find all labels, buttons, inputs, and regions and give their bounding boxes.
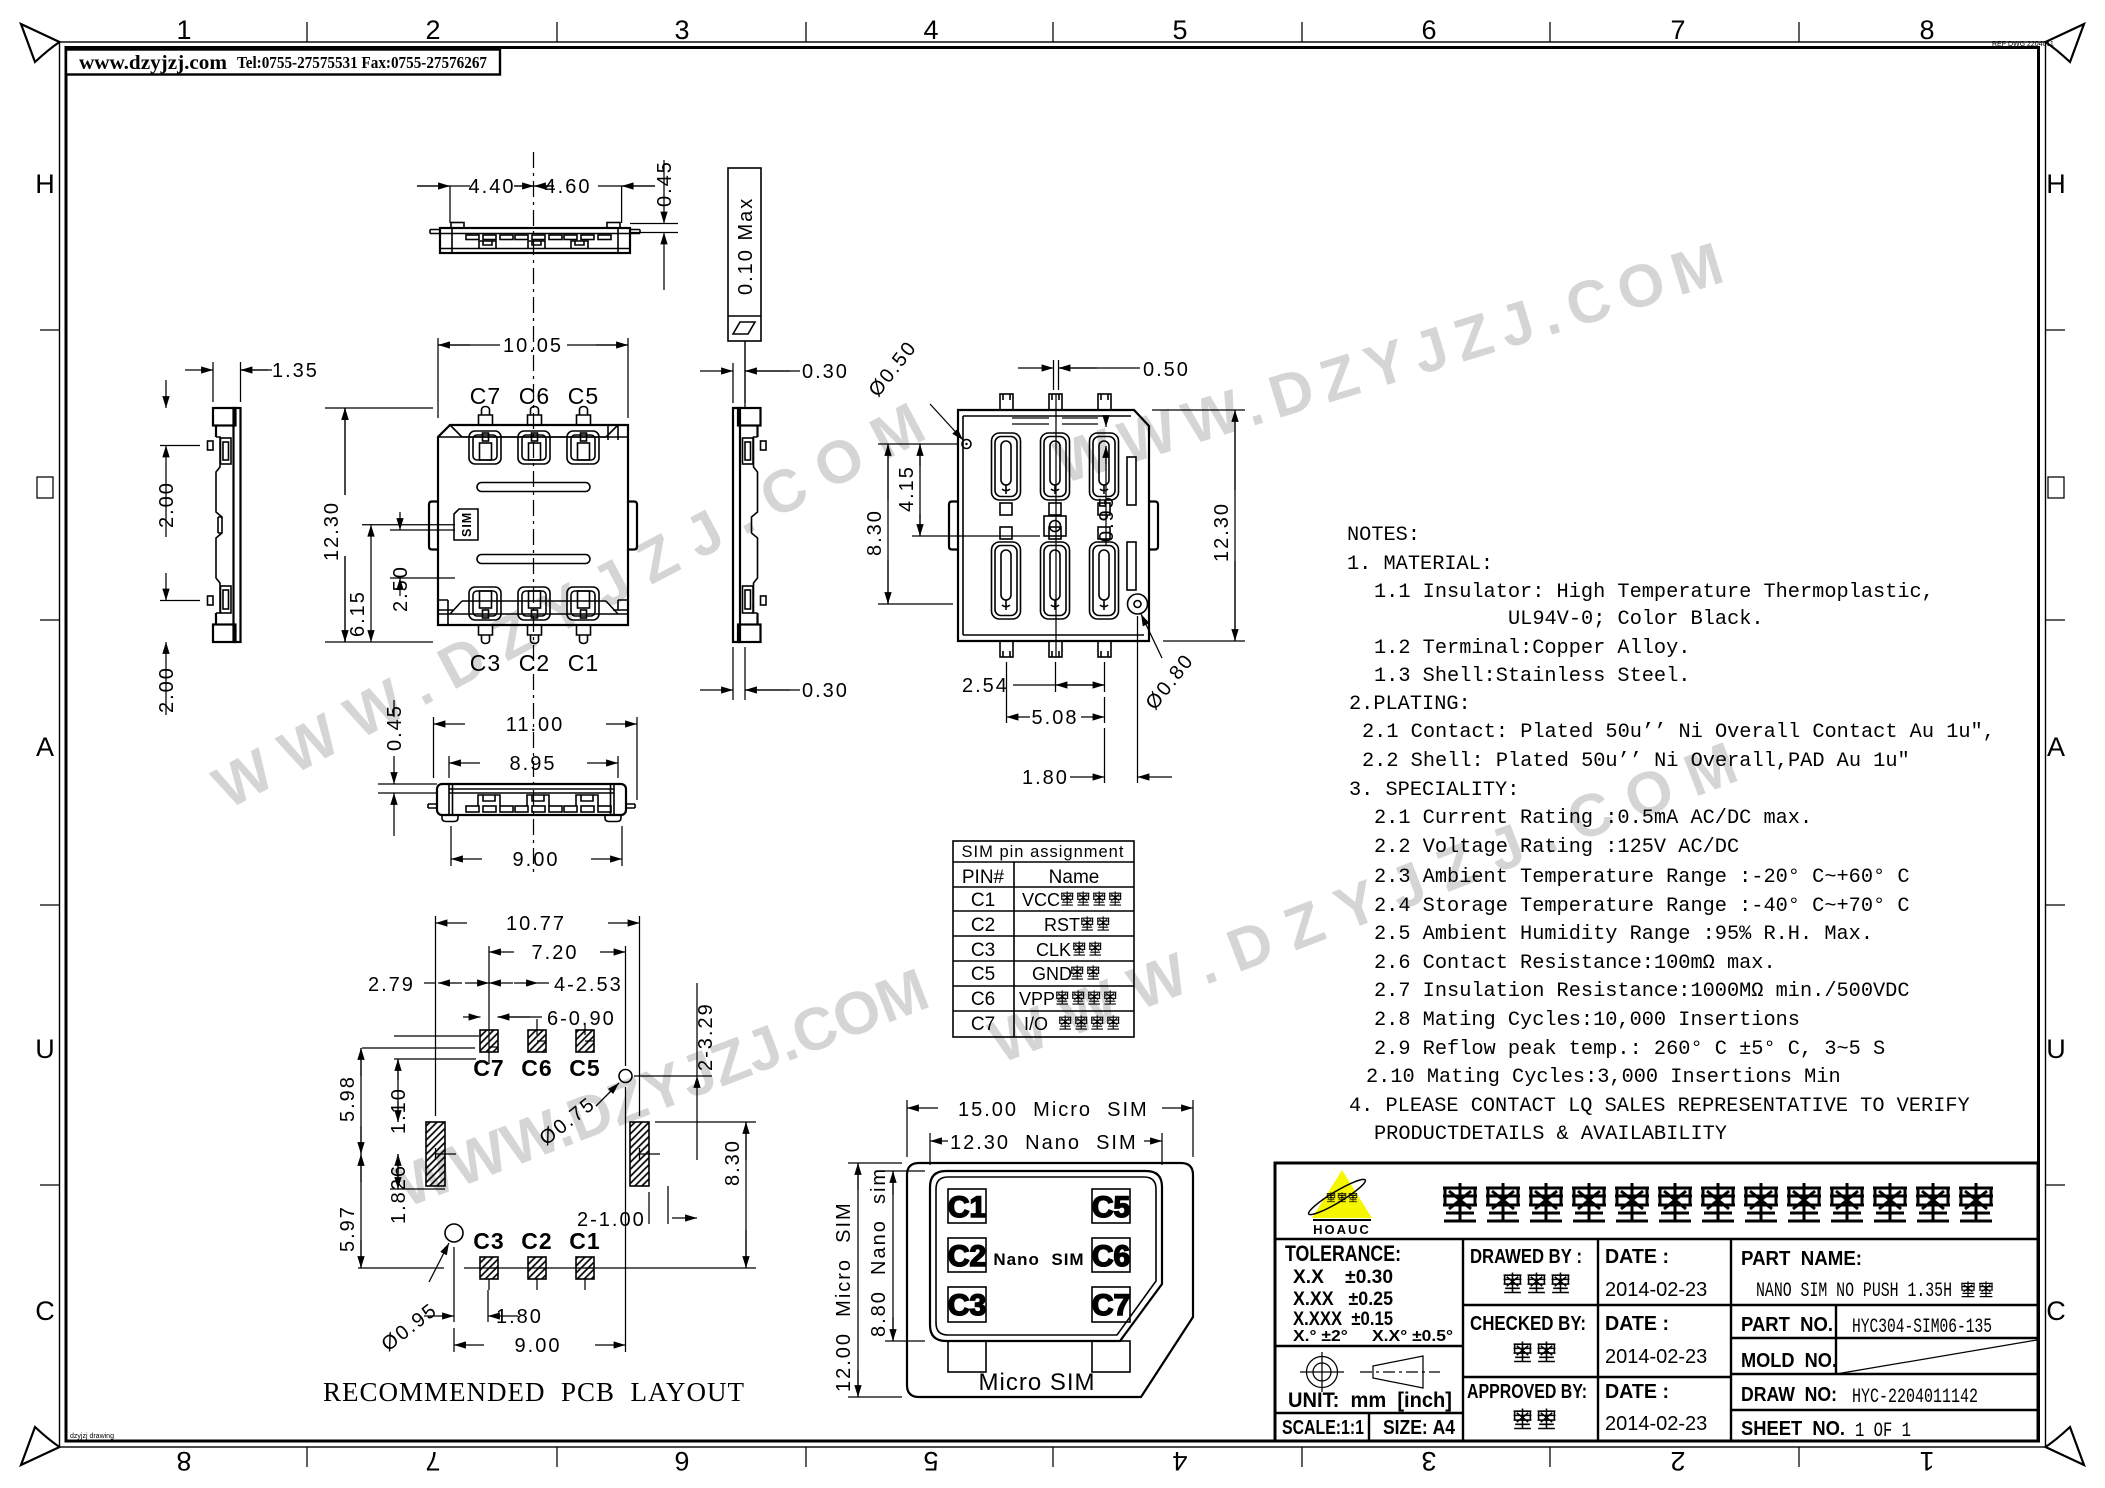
svg-text:C2: C2: [521, 1228, 552, 1254]
svg-text:12.30: 12.30: [1211, 502, 1233, 562]
svg-text:6.15: 6.15: [347, 590, 369, 637]
svg-text:2-3.29: 2-3.29: [695, 1002, 717, 1071]
svg-text:1: 1: [1919, 1446, 1934, 1476]
svg-text:DATE :: DATE :: [1605, 1313, 1669, 1335]
svg-text:www.dzyjzj.com: www.dzyjzj.com: [79, 52, 227, 74]
svg-text:10.05: 10.05: [503, 335, 563, 357]
svg-text:1.826: 1.826: [388, 1164, 410, 1224]
svg-text:SCALE:1:1: SCALE:1:1: [1282, 1417, 1364, 1439]
svg-text:H: H: [2046, 169, 2066, 199]
svg-text:2.3 Ambient Temperature Range: 2.3 Ambient Temperature Range :-20° C~+6…: [1374, 866, 1910, 889]
svg-text:HOAUC: HOAUC: [1313, 1222, 1371, 1237]
svg-text:UNIT: mm [inch]: UNIT: mm [inch]: [1288, 1389, 1452, 1412]
svg-text:2.00: 2.00: [156, 666, 178, 713]
svg-text:SIZE: A4: SIZE: A4: [1383, 1417, 1456, 1439]
svg-text:X.XX ±0.25: X.XX ±0.25: [1293, 1289, 1393, 1310]
svg-text:1.80: 1.80: [496, 1306, 543, 1328]
svg-text:C5: C5: [1092, 1191, 1130, 1224]
svg-text:4: 4: [923, 15, 938, 45]
svg-text:6-0.90: 6-0.90: [547, 1008, 616, 1030]
svg-text:9.00: 9.00: [515, 1335, 562, 1357]
svg-text:SIM: SIM: [460, 512, 474, 537]
svg-text:CLK: CLK: [1036, 940, 1071, 960]
svg-text:2.7 Insulation Resistance:1000: 2.7 Insulation Resistance:1000MΩ min./50…: [1374, 980, 1910, 1003]
svg-text:SIM pin assignment: SIM pin assignment: [962, 843, 1125, 861]
svg-text:HYC304-SIM06-135: HYC304-SIM06-135: [1852, 1316, 1992, 1339]
svg-text:C6: C6: [1092, 1240, 1130, 1273]
svg-text:C3: C3: [948, 1289, 986, 1322]
svg-text:C2: C2: [948, 1240, 986, 1273]
svg-text:DATE :: DATE :: [1605, 1381, 1669, 1403]
svg-text:C: C: [2046, 1296, 2066, 1326]
svg-text:2.2 Shell: Plated 50u’’ Ni Ove: 2.2 Shell: Plated 50u’’ Ni Overall,PAD A…: [1362, 750, 1910, 773]
svg-text:0.45: 0.45: [654, 160, 676, 207]
svg-text:VCC: VCC: [1022, 890, 1060, 910]
svg-text:C6: C6: [971, 989, 995, 1010]
svg-text:0.30: 0.30: [802, 680, 849, 702]
svg-text:2.5 Ambient Humidity Range :95: 2.5 Ambient Humidity Range :95% R.H. Max…: [1374, 923, 1873, 946]
svg-text:C6: C6: [519, 383, 550, 409]
svg-text:C1: C1: [971, 890, 995, 911]
svg-text:2.1 Contact: Plated 50u’’ Ni O: 2.1 Contact: Plated 50u’’ Ni Overall Con…: [1362, 721, 1995, 744]
svg-text:5: 5: [923, 1446, 938, 1476]
svg-text:2014-02-23: 2014-02-23: [1605, 1346, 1707, 1368]
svg-text:HYC-2204011142: HYC-2204011142: [1852, 1386, 1978, 1409]
svg-text:1.80: 1.80: [1022, 767, 1069, 789]
svg-text:5.98: 5.98: [337, 1075, 359, 1122]
svg-text:12.00 Micro SIM: 12.00 Micro SIM: [833, 1201, 855, 1392]
svg-text:8: 8: [1919, 15, 1934, 45]
svg-text:PIN#: PIN#: [962, 867, 1005, 888]
svg-text:2.6 Contact Resistance:100mΩ: 2.6 Contact Resistance:100mΩ max.: [1374, 952, 1776, 975]
svg-text:1. MATERIAL:: 1. MATERIAL:: [1347, 553, 1493, 576]
svg-text:7: 7: [1670, 15, 1685, 45]
svg-text:12.30: 12.30: [321, 501, 343, 561]
svg-text:TOLERANCE:: TOLERANCE:: [1285, 1241, 1401, 1266]
svg-text:6: 6: [674, 1446, 689, 1476]
svg-text:C3: C3: [971, 940, 995, 961]
svg-text:C3: C3: [470, 650, 501, 676]
svg-text:RST: RST: [1044, 915, 1080, 935]
svg-text:0.45: 0.45: [384, 704, 406, 751]
svg-text:6: 6: [1421, 15, 1436, 45]
svg-text:1: 1: [176, 15, 191, 45]
svg-text:2.9 Reflow peak temp.: 260° C: 2.9 Reflow peak temp.: 260° C ±5° C, 3~5…: [1374, 1038, 1885, 1061]
svg-text:C1: C1: [948, 1191, 986, 1224]
svg-text:0.10 Max: 0.10 Max: [735, 197, 757, 295]
svg-text:X.X ±0.30: X.X ±0.30: [1293, 1267, 1393, 1288]
svg-text:5.97: 5.97: [337, 1205, 359, 1252]
svg-text:VPP: VPP: [1019, 989, 1055, 1009]
svg-text:CHECKED BY:: CHECKED BY:: [1470, 1313, 1586, 1335]
svg-text:U: U: [2046, 1034, 2066, 1064]
svg-text:8.80 Nano sim: 8.80 Nano sim: [868, 1167, 890, 1337]
svg-text:8: 8: [176, 1446, 191, 1476]
svg-text:4.15: 4.15: [896, 465, 918, 512]
svg-text:Name: Name: [1049, 867, 1100, 888]
svg-text:C7: C7: [1092, 1289, 1130, 1322]
svg-text:I/O: I/O: [1024, 1014, 1048, 1034]
svg-text:GND: GND: [1032, 964, 1072, 984]
svg-text:2-1.00: 2-1.00: [577, 1209, 646, 1231]
svg-text:C6: C6: [521, 1055, 552, 1081]
svg-text:4.40: 4.40: [469, 176, 516, 198]
svg-text:11.00: 11.00: [506, 714, 565, 736]
svg-text:0.30: 0.30: [802, 361, 849, 383]
svg-text:C5: C5: [569, 1055, 600, 1081]
svg-text:0.95: 0.95: [1096, 495, 1118, 542]
svg-text:10.77: 10.77: [506, 913, 566, 935]
svg-text:1.10: 1.10: [388, 1087, 410, 1134]
svg-text:DATE :: DATE :: [1605, 1246, 1669, 1268]
svg-text:4.60: 4.60: [545, 176, 592, 198]
svg-text:DRAW NO:: DRAW NO:: [1741, 1384, 1837, 1406]
svg-text:4-2.53: 4-2.53: [554, 974, 623, 996]
svg-text:A: A: [36, 732, 54, 762]
svg-text:NANO SIM NO PUSH 1.35H: NANO SIM NO PUSH 1.35H: [1756, 1280, 1952, 1303]
svg-text:8.30: 8.30: [722, 1139, 744, 1186]
svg-text:3. SPECIALITY:: 3. SPECIALITY:: [1349, 779, 1519, 802]
svg-text:4. PLEASE CONTACT LQ SALES REP: 4. PLEASE CONTACT LQ SALES REPRESENTATIV…: [1349, 1095, 1970, 1118]
svg-text:2.79: 2.79: [368, 974, 415, 996]
svg-text:15.00 Micro SIM: 15.00 Micro SIM: [958, 1099, 1149, 1121]
svg-text:C1: C1: [568, 650, 599, 676]
svg-text:3: 3: [674, 15, 689, 45]
svg-text:2.50: 2.50: [390, 565, 412, 612]
svg-text:2: 2: [1670, 1446, 1685, 1476]
svg-text:MOLD NO.: MOLD NO.: [1741, 1350, 1837, 1372]
svg-text:C2: C2: [971, 915, 995, 936]
svg-text:2.8 Mating Cycles:10,000 Inser: 2.8 Mating Cycles:10,000 Insertions: [1374, 1009, 1800, 1032]
svg-text:7.20: 7.20: [532, 942, 579, 964]
svg-text:8.30: 8.30: [864, 509, 886, 556]
svg-text:1.2 Terminal:Copper Alloy.: 1.2 Terminal:Copper Alloy.: [1374, 637, 1690, 660]
svg-text:0.50: 0.50: [1143, 359, 1190, 381]
svg-text:C5: C5: [568, 383, 599, 409]
svg-text:Micro SIM: Micro SIM: [979, 1369, 1096, 1396]
svg-text:NOTES:: NOTES:: [1347, 524, 1420, 547]
svg-text:C2: C2: [519, 650, 550, 676]
svg-text:Nano SIM: Nano SIM: [993, 1250, 1084, 1269]
svg-text:5.08: 5.08: [1032, 707, 1079, 729]
svg-text:2: 2: [425, 15, 440, 45]
svg-text:3: 3: [1421, 1446, 1436, 1476]
svg-text:7: 7: [425, 1446, 440, 1476]
svg-text:PART NO.: PART NO.: [1741, 1314, 1833, 1336]
svg-text:X.° ±2° X.X° ±0.5°: X.° ±2° X.X° ±0.5°: [1293, 1328, 1453, 1345]
svg-text:8.95: 8.95: [510, 753, 557, 775]
svg-text:C7: C7: [470, 383, 501, 409]
svg-text:2.PLATING:: 2.PLATING:: [1349, 693, 1471, 716]
svg-text:REF DWG 2204011: REF DWG 2204011: [1992, 41, 2054, 48]
svg-text:H: H: [35, 169, 55, 199]
svg-text:X.XXX ±0.15: X.XXX ±0.15: [1293, 1309, 1393, 1330]
svg-text:1.1 Insulator: High Temperatur: 1.1 Insulator: High Temperature Thermopl…: [1374, 581, 1934, 604]
svg-text:2014-02-23: 2014-02-23: [1605, 1279, 1707, 1301]
svg-text:APPROVED BY:: APPROVED BY:: [1467, 1381, 1587, 1403]
svg-text:C: C: [35, 1296, 55, 1326]
svg-text:1 OF 1: 1 OF 1: [1855, 1420, 1911, 1443]
svg-text:C5: C5: [971, 964, 995, 985]
svg-text:RECOMMENDED PCB LAYOUT: RECOMMENDED PCB LAYOUT: [323, 1377, 745, 1407]
svg-text:4: 4: [1172, 1446, 1187, 1476]
svg-text:1.3 Shell:Stainless Steel.: 1.3 Shell:Stainless Steel.: [1374, 665, 1690, 688]
svg-text:C7: C7: [971, 1014, 995, 1035]
svg-text:C3: C3: [473, 1228, 504, 1254]
svg-text:2.1 Current Rating :0.5mA AC/D: 2.1 Current Rating :0.5mA AC/DC max.: [1374, 807, 1812, 830]
svg-text:2.54: 2.54: [962, 675, 1009, 697]
svg-text:UL94V-0; Color Black.: UL94V-0; Color Black.: [1508, 608, 1764, 631]
svg-text:A: A: [2047, 732, 2065, 762]
svg-text:PART NAME:: PART NAME:: [1741, 1248, 1862, 1270]
svg-text:PRODUCTDETAILS & AVAILABILITY: PRODUCTDETAILS & AVAILABILITY: [1374, 1123, 1727, 1146]
svg-text:2.4 Storage Temperature Range: 2.4 Storage Temperature Range :-40° C~+7…: [1374, 895, 1910, 918]
svg-text:9.00: 9.00: [513, 849, 560, 871]
svg-text:C1: C1: [569, 1228, 600, 1254]
svg-text:SHEET NO.: SHEET NO.: [1741, 1418, 1845, 1440]
svg-text:2.10 Mating Cycles:3,000 Inser: 2.10 Mating Cycles:3,000 Insertions Min: [1366, 1066, 1841, 1089]
svg-text:Tel:0755-27575531 Fax:0755-27: Tel:0755-27575531 Fax:0755-27576267: [237, 53, 487, 72]
svg-text:DRAWED BY :: DRAWED BY :: [1470, 1246, 1582, 1268]
svg-text:dzyjzj drawing: dzyjzj drawing: [70, 1433, 114, 1440]
svg-text:12.30 Nano SIM: 12.30 Nano SIM: [950, 1132, 1138, 1154]
svg-text:U: U: [35, 1034, 55, 1064]
svg-text:2.00: 2.00: [156, 481, 178, 528]
svg-text:2.2 Voltage Rating :125V AC/DC: 2.2 Voltage Rating :125V AC/DC: [1374, 836, 1739, 859]
svg-text:5: 5: [1172, 15, 1187, 45]
svg-text:1.35: 1.35: [272, 360, 319, 382]
svg-text:2014-02-23: 2014-02-23: [1605, 1413, 1707, 1435]
